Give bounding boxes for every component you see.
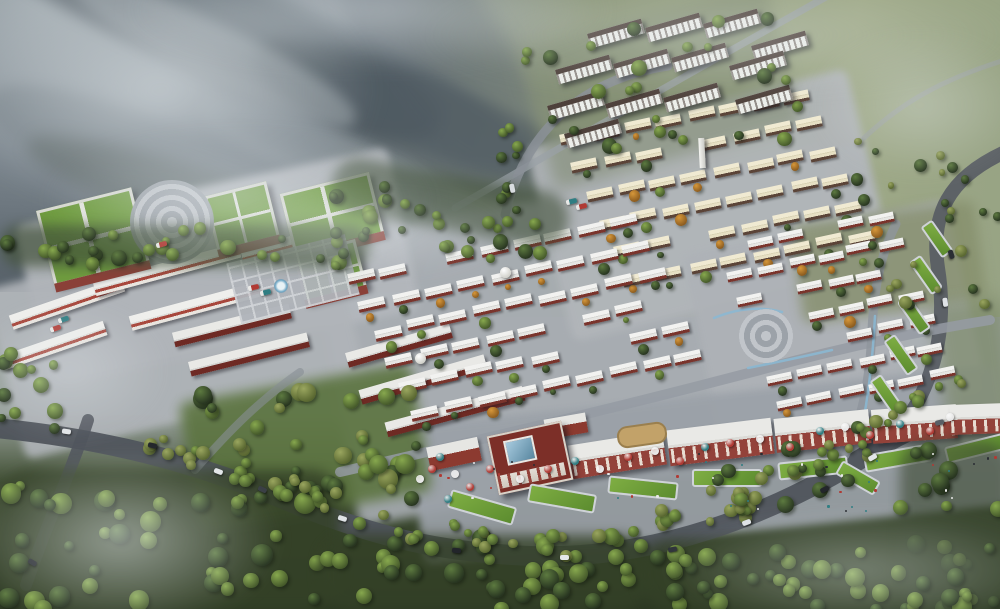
fog-layer bbox=[0, 0, 1000, 609]
fog-patch bbox=[660, 510, 1000, 609]
fog-patch bbox=[0, 300, 170, 440]
fog-patch bbox=[0, 450, 280, 609]
rendering-canvas: aerial-town-masterplan-rendering bbox=[0, 0, 1000, 609]
fog-patch bbox=[230, 195, 510, 275]
